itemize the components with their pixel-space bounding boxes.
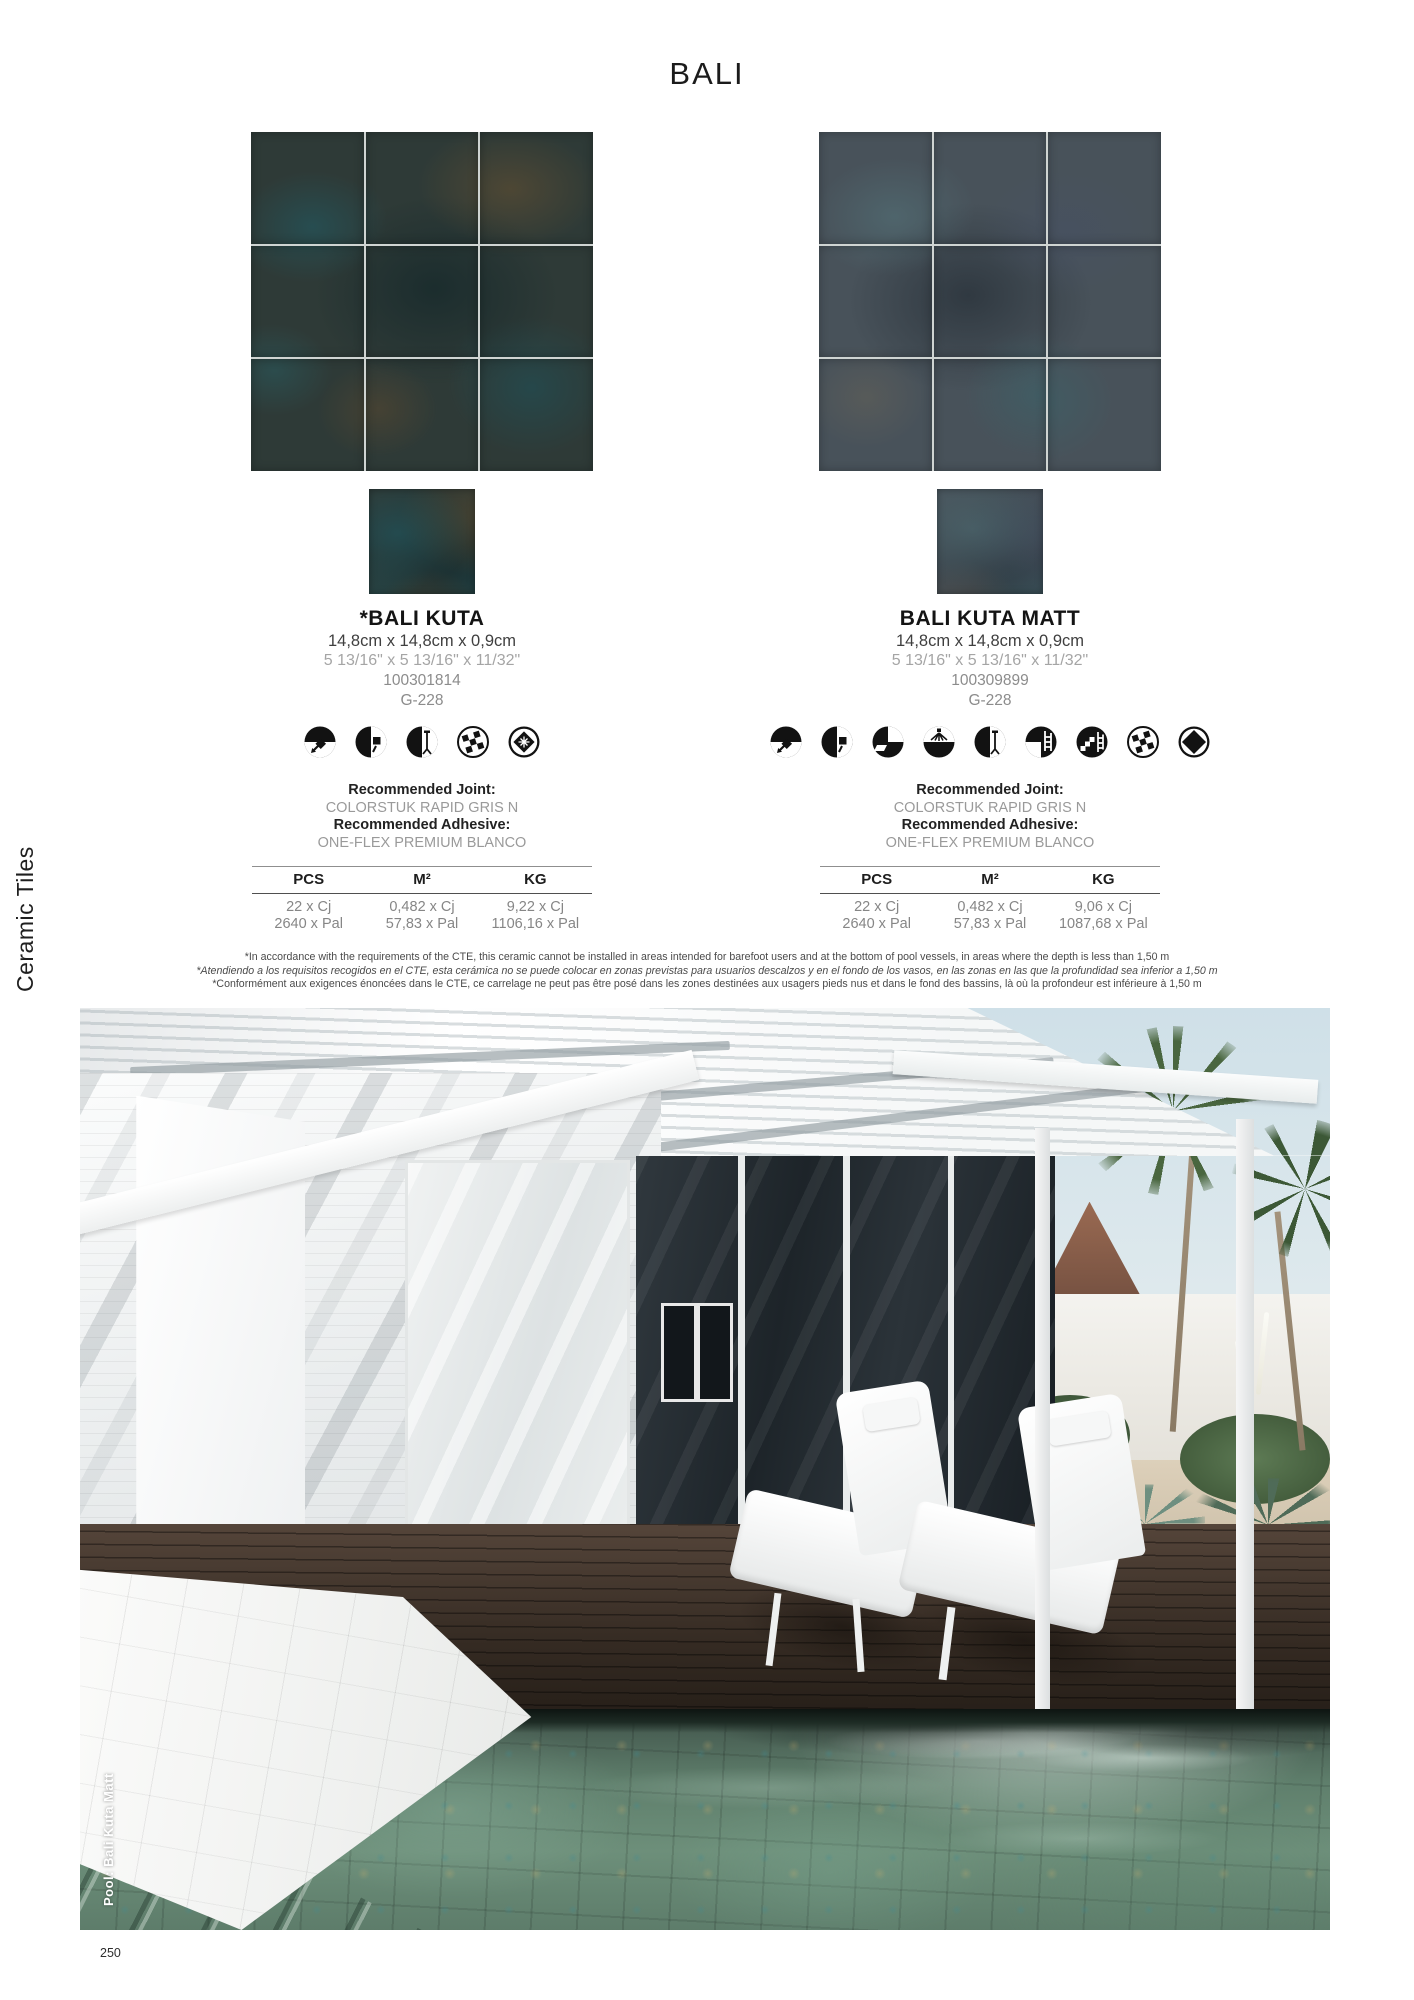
product-bali-kuta-matt: BALI KUTA MATT 14,8cm x 14,8cm x 0,9cm 5… [790,132,1190,933]
product-name: BALI KUTA MATT [900,607,1080,631]
size-metric: 14,8cm x 14,8cm x 0,9cm [328,631,516,651]
tile-cell [480,359,593,471]
catalog-page: BALI Ceramic Tiles *BALI KUTA 14,8cm x 1… [0,0,1414,2000]
size-imperial: 5 13/16" x 5 13/16" x 11/32" [324,651,520,671]
tile-cell [819,246,932,358]
tile-cell [819,359,932,471]
spec-col-kg: KG [479,867,592,894]
shade-code: G-228 [968,691,1011,711]
adhesive-label: Recommended Adhesive: [318,817,527,835]
product-bali-kuta: *BALI KUTA 14,8cm x 14,8cm x 0,9cm 5 13/… [222,132,622,933]
joint-label: Recommended Joint: [318,782,527,800]
size-imperial: 5 13/16" x 5 13/16" x 11/32" [892,651,1088,671]
usage-wall-icon [354,725,388,759]
table-row: 22 x Cj 0,482 x Cj 9,06 x Cj [820,894,1160,917]
usage-floor-icon [769,725,803,759]
usage-icon-row [303,725,541,759]
recommendations: Recommended Joint: COLORSTUK RAPID GRIS … [886,782,1095,852]
sliding-door-light [405,1160,630,1570]
adhesive-value: ONE-FLEX PREMIUM BLANCO [886,835,1095,853]
pool-photo: Pool: Bali Kuta Matt [80,1008,1330,1930]
tile-cell [819,132,932,244]
product-name: *BALI KUTA [360,607,485,631]
usage-floor-icon [303,725,337,759]
table-row: 2640 x Pal 57,83 x Pal 1106,16 x Pal [252,916,592,933]
size-metric: 14,8cm x 14,8cm x 0,9cm [896,631,1084,651]
interior-window [661,1303,732,1401]
tile-cell [251,246,364,358]
spec-table: PCS M² KG 22 x Cj 0,482 x Cj 9,06 x Cj 2… [820,866,1160,933]
spec-col-m2: M² [933,867,1046,894]
usage-shower-floor-icon [922,725,956,759]
spec-cell: 0,482 x Cj [933,894,1046,917]
tile-cell [480,132,593,244]
footnote-es: *Atendiendo a los requisitos recogidos e… [0,965,1414,979]
spec-col-m2: M² [365,867,478,894]
tile-cell [251,359,364,471]
photo-caption: Pool: Bali Kuta Matt [101,1746,116,1906]
tile-sample-grid [819,132,1161,471]
page-title: BALI [0,56,1414,92]
tile-cell [366,132,479,244]
spec-col-kg: KG [1047,867,1160,894]
spec-cell: 1087,68 x Pal [1047,916,1160,933]
tile-swatch [937,489,1043,594]
usage-facade-icon [871,725,905,759]
footnotes: *In accordance with the requirements of … [0,951,1414,992]
sun-lounger [905,1400,1143,1704]
pergola-post [1236,1119,1254,1709]
product-sku: 100301814 [383,671,461,691]
footnote-en: *In accordance with the requirements of … [0,951,1414,965]
usage-pool-floor-icon [1024,725,1058,759]
spec-cell: 57,83 x Pal [365,916,478,933]
spec-cell: 57,83 x Pal [933,916,1046,933]
recommendations: Recommended Joint: COLORSTUK RAPID GRIS … [318,782,527,852]
window-bar [694,1306,699,1398]
page-number: 250 [100,1946,121,1960]
spec-cell: 2640 x Pal [252,916,365,933]
shade-code: G-228 [400,691,443,711]
pergola-post [1035,1128,1050,1709]
spec-table: PCS M² KG 22 x Cj 0,482 x Cj 9,22 x Cj 2… [252,866,592,933]
table-row: 2640 x Pal 57,83 x Pal 1087,68 x Pal [820,916,1160,933]
deco-mosaic-icon [456,725,490,759]
spec-cell: 1106,16 x Pal [479,916,592,933]
joint-value: COLORSTUK RAPID GRIS N [886,800,1095,818]
product-sku: 100309899 [951,671,1029,691]
tile-cell [480,246,593,358]
spec-cell: 2640 x Pal [820,916,933,933]
footnote-fr: *Conformément aux exigences énoncées dan… [0,978,1414,992]
usage-pool-wall-icon [1075,725,1109,759]
tile-cell [934,132,1047,244]
joint-value: COLORSTUK RAPID GRIS N [318,800,527,818]
spec-cell: 9,22 x Cj [479,894,592,917]
deco-mosaic-icon [1126,725,1160,759]
tile-cell [1048,132,1161,244]
tile-cell [1048,246,1161,358]
finish-gloss-icon [507,725,541,759]
finish-matt-icon [1177,725,1211,759]
spec-col-pcs: PCS [820,867,933,894]
adhesive-label: Recommended Adhesive: [886,817,1095,835]
tile-sample-grid [251,132,593,471]
usage-shower-wall-icon [973,725,1007,759]
tile-cell [934,246,1047,358]
joint-label: Recommended Joint: [886,782,1095,800]
spec-col-pcs: PCS [252,867,365,894]
table-row: 22 x Cj 0,482 x Cj 9,22 x Cj [252,894,592,917]
usage-shower-wall-icon [405,725,439,759]
adhesive-value: ONE-FLEX PREMIUM BLANCO [318,835,527,853]
tile-cell [1048,359,1161,471]
tile-cell [366,246,479,358]
usage-wall-icon [820,725,854,759]
spec-cell: 22 x Cj [820,894,933,917]
tile-cell [366,359,479,471]
spec-cell: 22 x Cj [252,894,365,917]
tile-cell [251,132,364,244]
spec-cell: 0,482 x Cj [365,894,478,917]
spec-cell: 9,06 x Cj [1047,894,1160,917]
tile-cell [934,359,1047,471]
tile-swatch [369,489,475,594]
usage-icon-row [769,725,1211,759]
